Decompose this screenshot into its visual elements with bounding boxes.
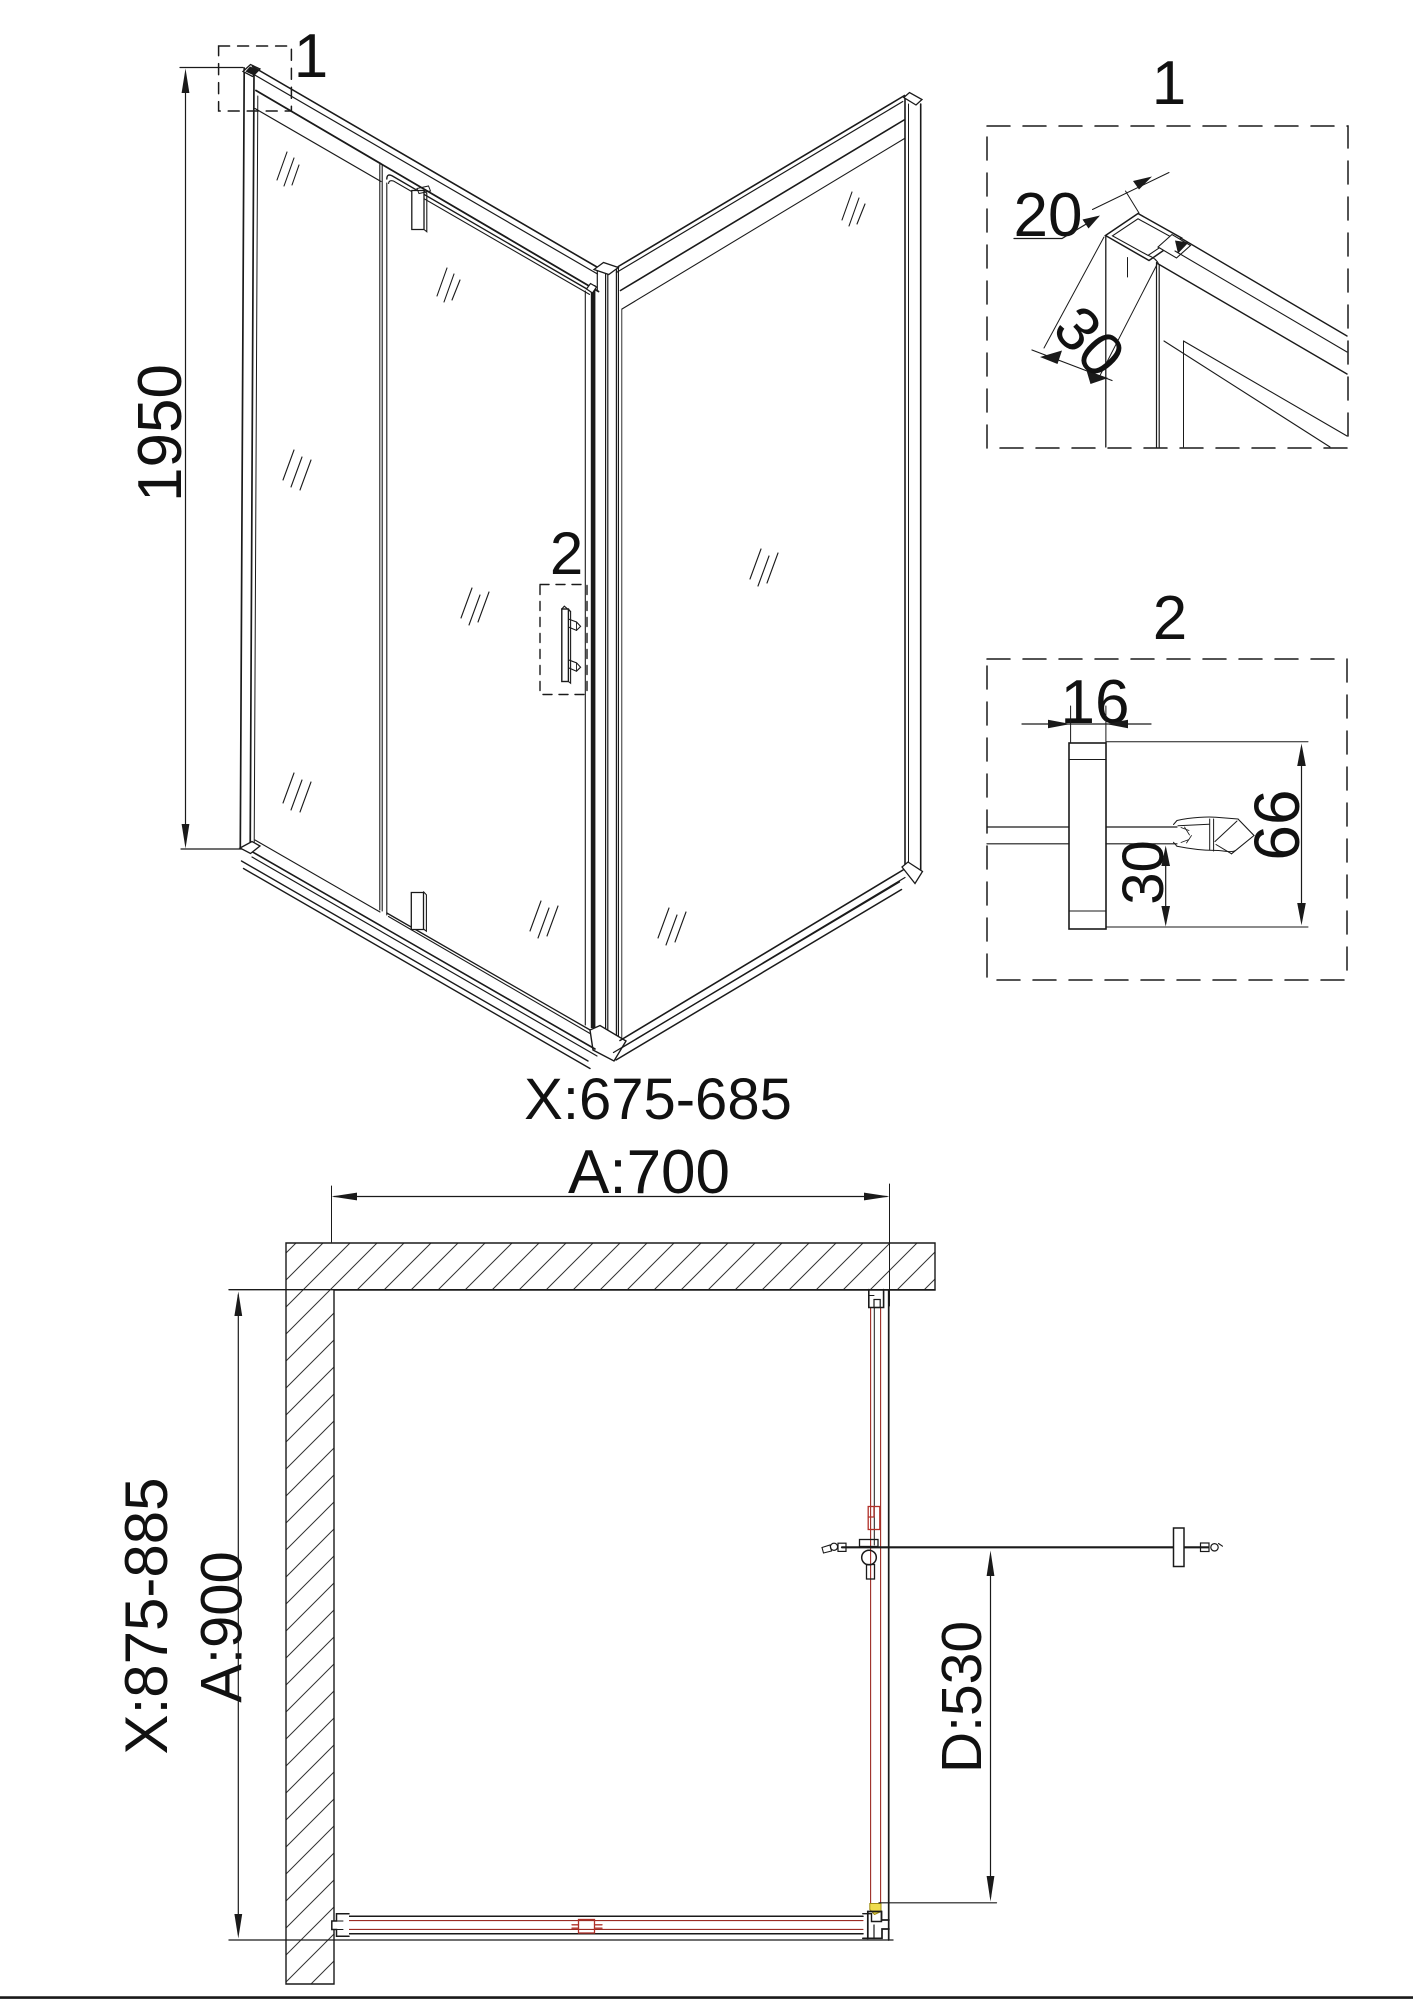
svg-text:D:530: D:530 <box>930 1621 994 1773</box>
svg-text:X:675-685: X:675-685 <box>524 1067 792 1132</box>
svg-text:1: 1 <box>294 22 328 91</box>
svg-text:2: 2 <box>550 520 583 587</box>
svg-text:2: 2 <box>1153 584 1187 653</box>
svg-text:X:875-885: X:875-885 <box>113 1478 180 1755</box>
svg-text:20: 20 <box>1014 181 1083 250</box>
svg-text:1: 1 <box>1152 49 1186 118</box>
svg-text:1950: 1950 <box>126 364 195 502</box>
svg-text:66: 66 <box>1241 789 1313 860</box>
svg-text:A:900: A:900 <box>190 1551 255 1703</box>
svg-text:30: 30 <box>1111 840 1176 905</box>
